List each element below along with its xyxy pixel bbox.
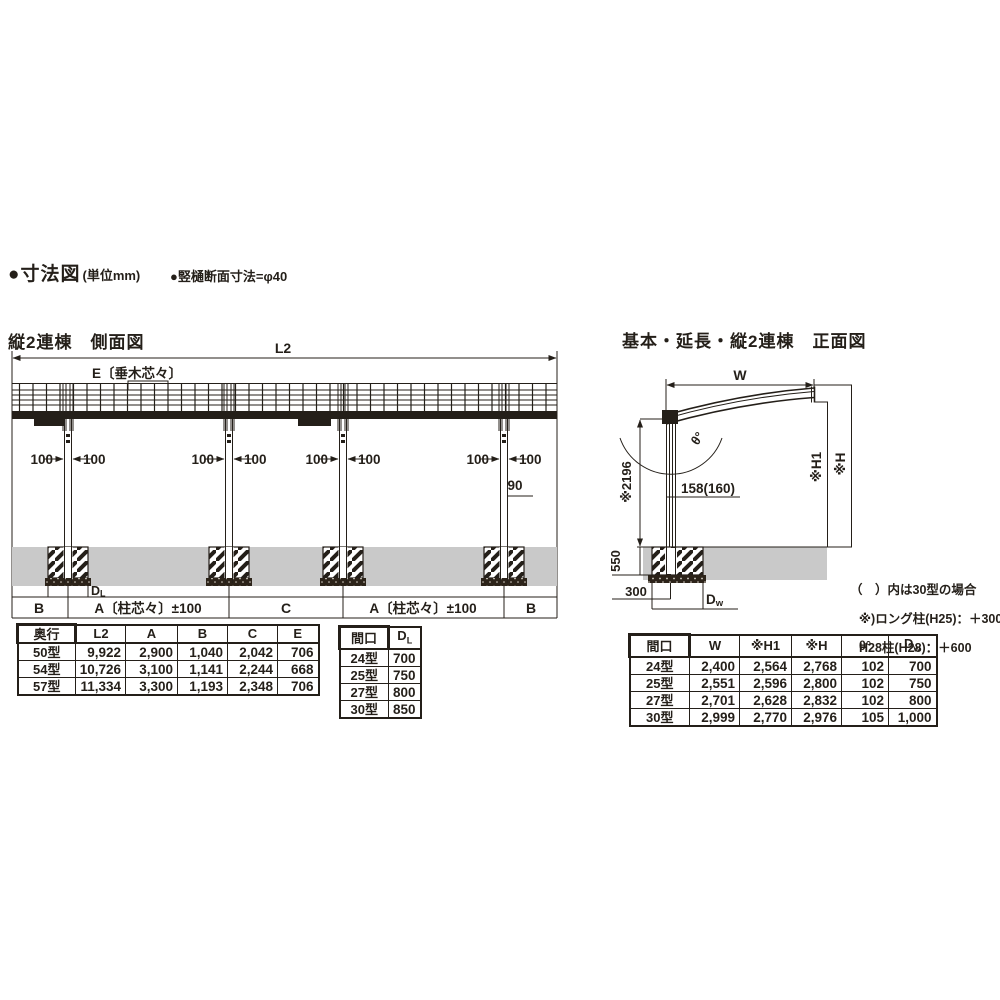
cell: 9,922 — [76, 643, 126, 661]
cell: 2,900 — [126, 643, 178, 661]
table-header-row: 間口 W ※H1 ※H θ° Dw — [630, 635, 937, 658]
table-row: 54型 10,726 3,100 1,141 2,244 668 — [18, 661, 319, 678]
page-header: ●寸法図 (単位mm) — [8, 259, 140, 286]
segment-a-right: A〔柱芯々〕±100 — [369, 600, 476, 616]
header-cell: C — [228, 625, 278, 644]
cell: 11,334 — [76, 678, 126, 696]
dimension-unit-label: (単位mm) — [82, 265, 140, 284]
row-label: 27型 — [340, 684, 389, 701]
cell: 2,244 — [228, 661, 278, 678]
row-label: 57型 — [18, 678, 76, 696]
h-label: ※H — [833, 453, 848, 476]
cell: 2,800 — [792, 675, 842, 692]
dim-300-label: 300 — [625, 584, 647, 599]
cell: 1,040 — [178, 643, 228, 661]
cell: 800 — [389, 684, 421, 701]
header-cell: 間口 — [630, 635, 690, 658]
table-row: 30型 2,999 2,770 2,976 105 1,000 — [630, 709, 937, 727]
roof-side — [12, 383, 557, 426]
downpipe-section-note: ●竪樋断面寸法=φ40 — [170, 266, 287, 285]
cell: 2,701 — [690, 692, 740, 709]
theta-label: θ° — [688, 429, 707, 448]
cell: 105 — [842, 709, 889, 727]
row-label: 50型 — [18, 643, 76, 661]
h1-label: ※H1 — [809, 451, 824, 482]
table-row: 50型 9,922 2,900 1,040 2,042 706 — [18, 643, 319, 661]
header-cell: L2 — [76, 625, 126, 644]
cell: 2,976 — [792, 709, 842, 727]
header-cell: E — [278, 625, 319, 644]
header-cell: θ° — [842, 635, 889, 658]
cell: 1,000 — [889, 709, 937, 727]
cell: 700 — [889, 657, 937, 675]
l2-dimension-label: L2 — [275, 340, 292, 356]
cell: 2,551 — [690, 675, 740, 692]
cell: 102 — [842, 692, 889, 709]
cell: 800 — [889, 692, 937, 709]
row-label: 25型 — [630, 675, 690, 692]
table-row: 25型 2,551 2,596 2,800 102 750 — [630, 675, 937, 692]
dim-90-label: 90 — [507, 478, 522, 493]
row-label: 25型 — [340, 667, 389, 684]
note-line-1: （ ）内は30型の場合 — [845, 583, 1000, 598]
roof-angle-arc — [620, 438, 722, 474]
cell: 2,400 — [690, 657, 740, 675]
dim-2196-label: ※2196 — [619, 461, 634, 503]
segment-b-right: B — [526, 600, 536, 616]
segment-a-left: A〔柱芯々〕±100 — [94, 600, 201, 616]
side-view-drawing: 100 100 L2 E〔垂木芯々〕 — [0, 335, 580, 625]
cell: 2,628 — [740, 692, 792, 709]
cell: 10,726 — [76, 661, 126, 678]
roof-front — [662, 387, 815, 425]
cell: 3,300 — [126, 678, 178, 696]
row-label: 54型 — [18, 661, 76, 678]
table-row: 57型 11,334 3,300 1,193 2,348 706 — [18, 678, 319, 696]
cell: 750 — [389, 667, 421, 684]
dl-label: DL — [91, 584, 106, 599]
header-cell: 間口 — [340, 627, 389, 650]
column-width-label: 158(160) — [681, 481, 735, 496]
segment-c: C — [281, 600, 291, 616]
table-row: 25型 750 — [340, 667, 421, 684]
foundation-width-table: 間口 DL 24型 700 25型 750 27型 800 30型 850 — [338, 625, 422, 719]
cell: 102 — [842, 675, 889, 692]
header-cell: W — [690, 635, 740, 658]
dimension-figure-title: ●寸法図 — [8, 259, 80, 286]
ground-band — [12, 547, 557, 586]
cell: 3,100 — [126, 661, 178, 678]
cell: 2,770 — [740, 709, 792, 727]
table-row: 27型 2,701 2,628 2,832 102 800 — [630, 692, 937, 709]
row-label: 27型 — [630, 692, 690, 709]
gutter-front-unit2 — [298, 419, 331, 426]
header-cell: ※H — [792, 635, 842, 658]
header-cell: B — [178, 625, 228, 644]
cell: 1,141 — [178, 661, 228, 678]
dim-550-label: 550 — [608, 550, 623, 572]
cell: 850 — [389, 701, 421, 719]
header-cell: A — [126, 625, 178, 644]
cell: 706 — [278, 643, 319, 661]
cell: 2,564 — [740, 657, 792, 675]
gutter-front-unit1 — [34, 419, 64, 426]
rafter-pitch-label: E〔垂木芯々〕 — [92, 365, 182, 381]
cell: 2,999 — [690, 709, 740, 727]
cell: 2,348 — [228, 678, 278, 696]
cell: 700 — [389, 649, 421, 667]
table-row: 27型 800 — [340, 684, 421, 701]
table-row: 24型 2,400 2,564 2,768 102 700 — [630, 657, 937, 675]
row-label: 24型 — [340, 649, 389, 667]
cell: 1,193 — [178, 678, 228, 696]
cell: 2,042 — [228, 643, 278, 661]
table-row: 24型 700 — [340, 649, 421, 667]
beam-column-joint — [662, 410, 678, 424]
segment-b-left: B — [34, 600, 44, 616]
w-dimension-label: W — [733, 367, 747, 383]
bottom-dimension-row: DL B A〔柱芯々〕±100 C A〔柱芯々〕±100 B — [12, 584, 557, 618]
depth-dimension-table: 奥行 L2 A B C E 50型 9,922 2,900 1,040 2,04… — [16, 623, 320, 696]
table-header-row: 奥行 L2 A B C E — [18, 625, 319, 644]
header-cell: ※H1 — [740, 635, 792, 658]
front-view-title: 基本・延長・縦2連棟 正面図 — [622, 327, 866, 352]
cell: 668 — [278, 661, 319, 678]
header-cell: Dw — [889, 635, 937, 658]
dw-label: Dw — [706, 592, 724, 609]
row-label: 30型 — [340, 701, 389, 719]
cell: 2,832 — [792, 692, 842, 709]
row-label: 24型 — [630, 657, 690, 675]
header-cell: DL — [389, 627, 421, 650]
cell: 102 — [842, 657, 889, 675]
table-row: 30型 850 — [340, 701, 421, 719]
cell: 706 — [278, 678, 319, 696]
foundation-front — [648, 547, 706, 583]
header-cell: 奥行 — [18, 625, 76, 644]
cell: 2,768 — [792, 657, 842, 675]
cell: 750 — [889, 675, 937, 692]
dimension-drawing-page: ●寸法図 (単位mm) ●竪樋断面寸法=φ40 縦2連棟 側面図 基本・延長・縦… — [0, 0, 1000, 1000]
table-header-row: 間口 DL — [340, 627, 421, 650]
row-label: 30型 — [630, 709, 690, 727]
note-line-2: ※)ロング柱(H25)：＋300 — [859, 612, 1000, 626]
front-dimension-table: 間口 W ※H1 ※H θ° Dw 24型 2,400 2,564 2,768 … — [628, 633, 938, 727]
cell: 2,596 — [740, 675, 792, 692]
